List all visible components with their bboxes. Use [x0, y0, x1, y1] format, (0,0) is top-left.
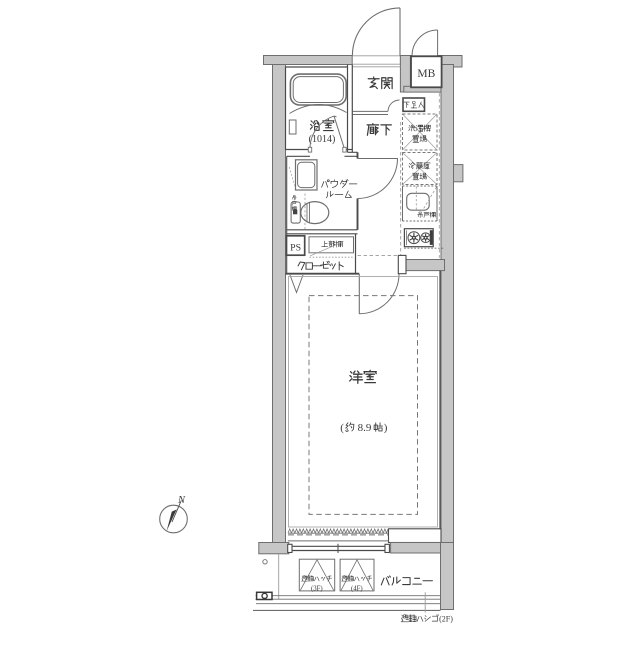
svg-text:N: N: [177, 495, 186, 506]
svg-text:(4F): (4F): [351, 585, 363, 592]
svg-text:(: (: [340, 422, 344, 434]
svg-text:): ): [384, 422, 388, 434]
svg-text:8.9: 8.9: [358, 422, 372, 434]
svg-text:MB: MB: [417, 68, 435, 80]
svg-text:(3F): (3F): [311, 585, 323, 592]
svg-text:(2F): (2F): [439, 614, 453, 623]
svg-text:PS: PS: [290, 242, 301, 253]
